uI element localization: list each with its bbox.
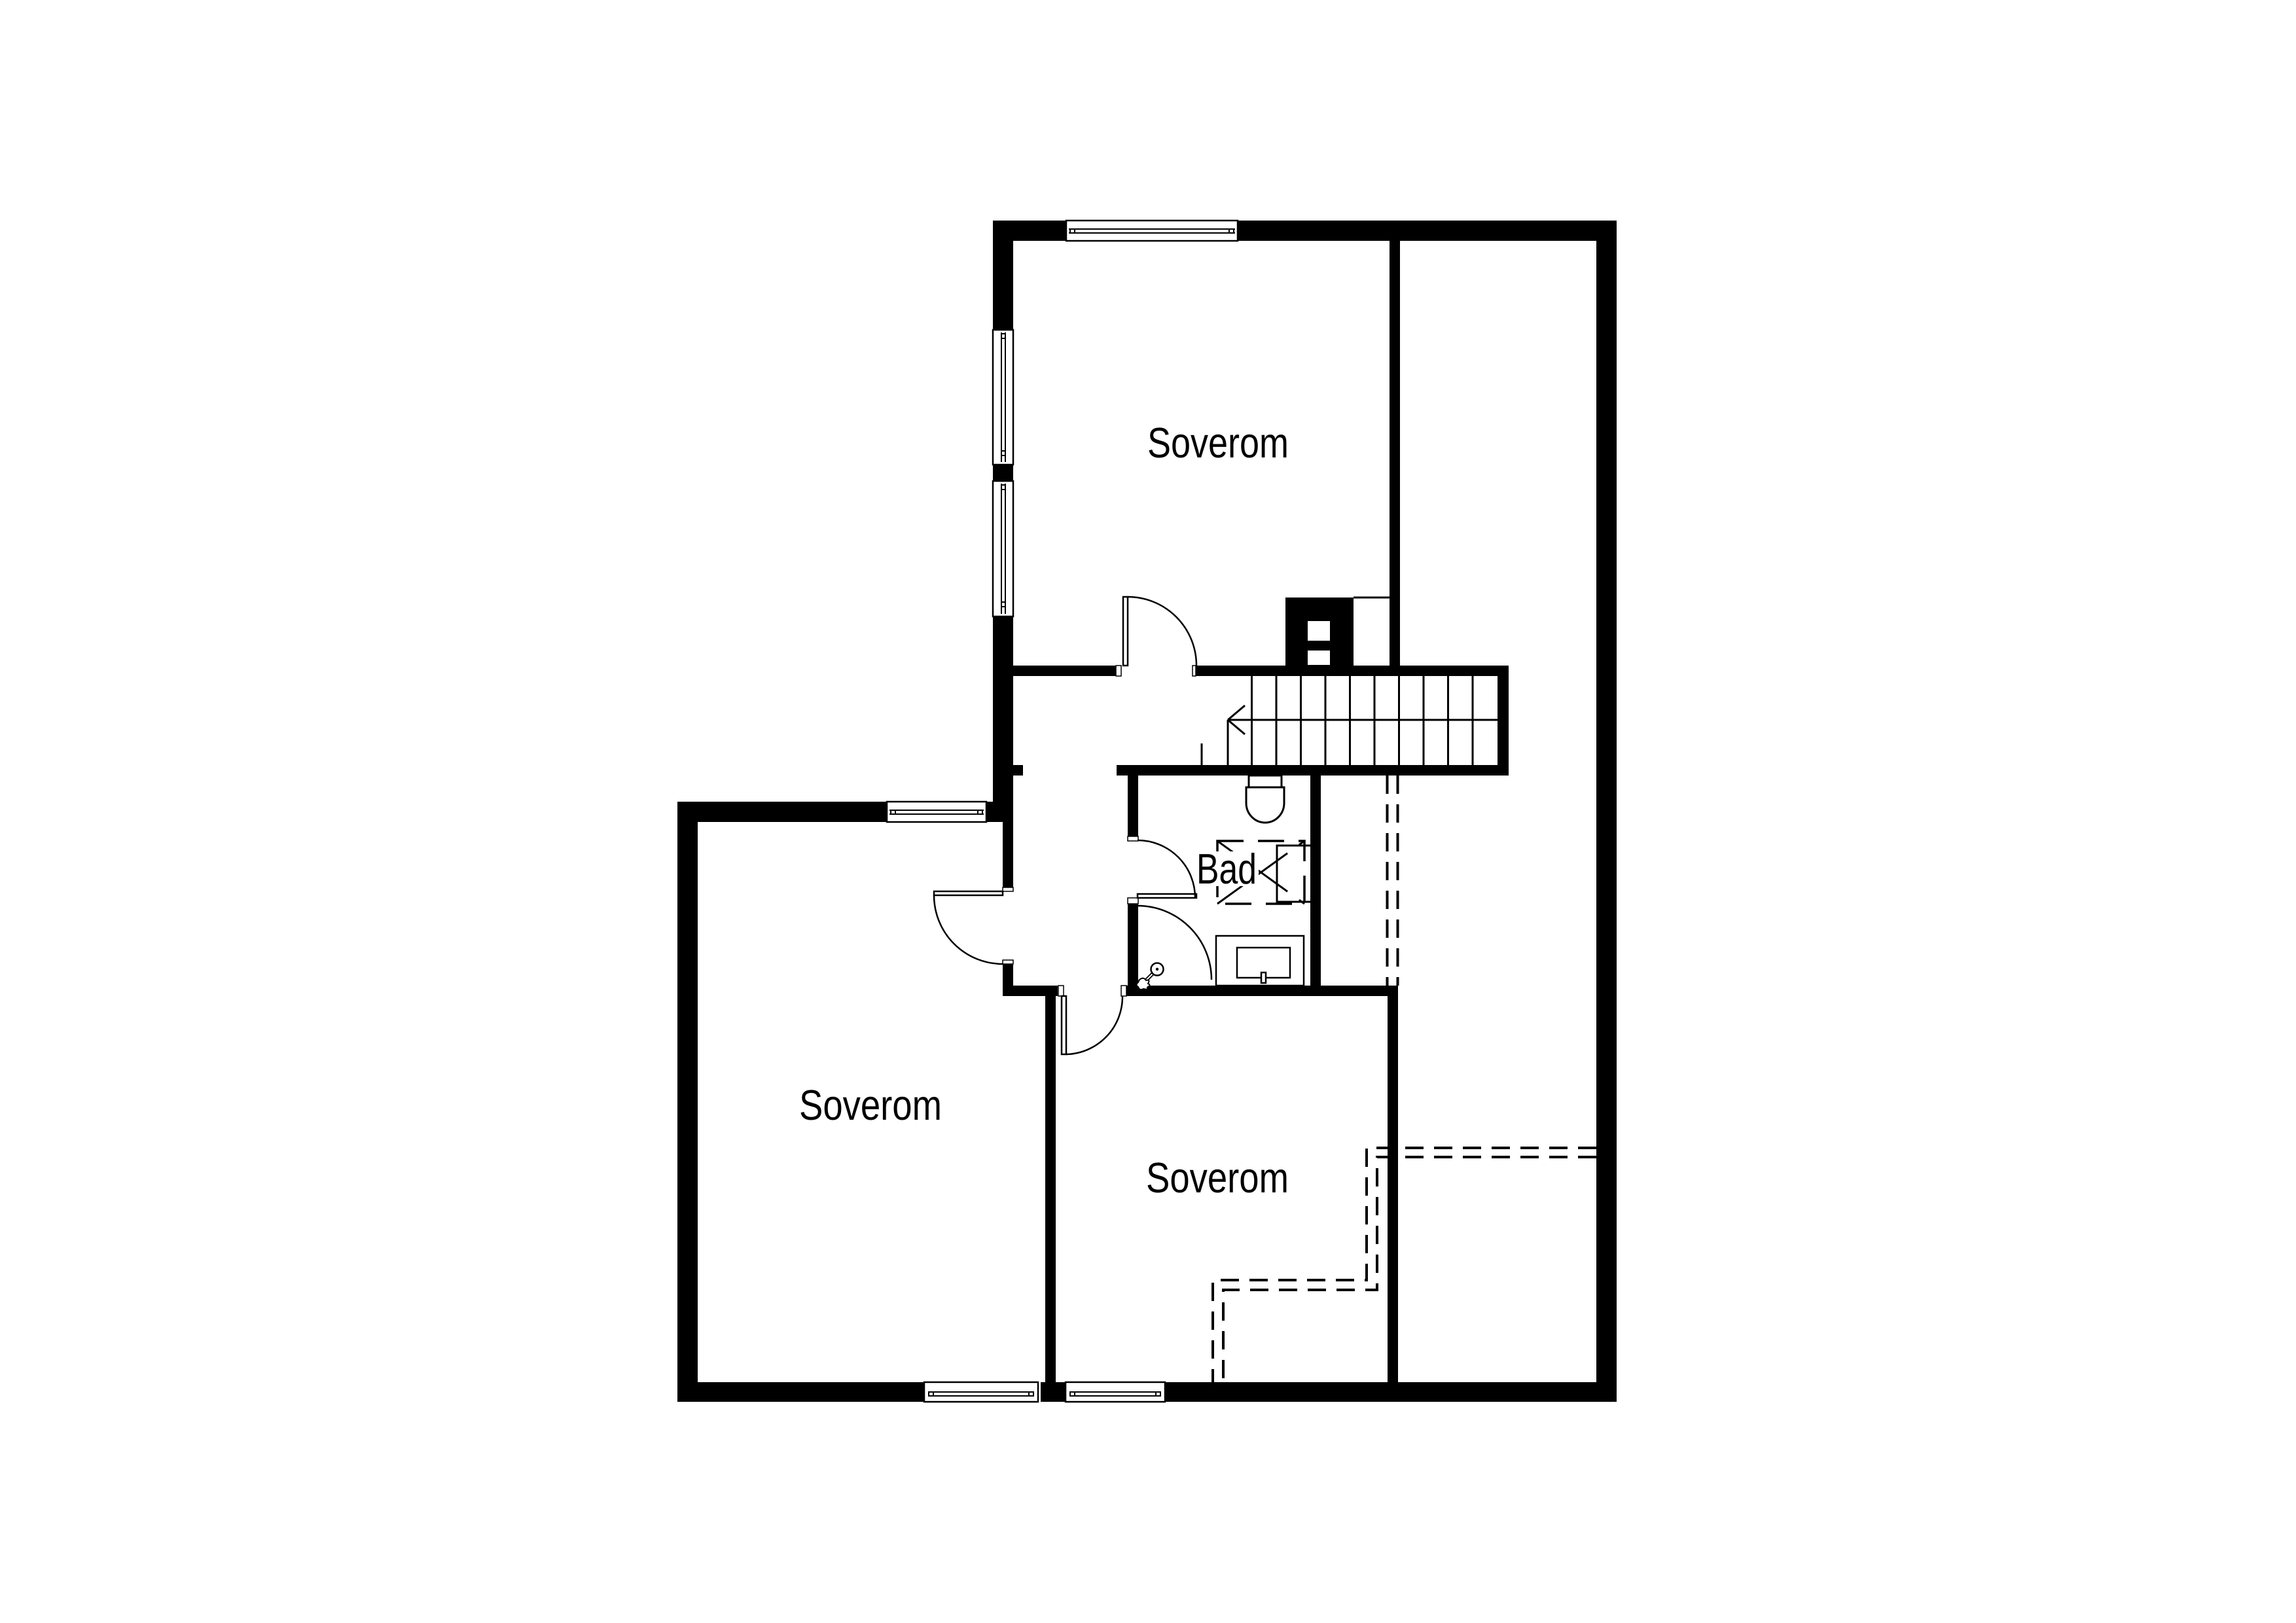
svg-text:Bad: Bad [1196,845,1257,893]
svg-text:Soverom: Soverom [1146,1154,1289,1202]
svg-text:Soverom: Soverom [799,1081,942,1129]
svg-text:Soverom: Soverom [1147,419,1289,467]
